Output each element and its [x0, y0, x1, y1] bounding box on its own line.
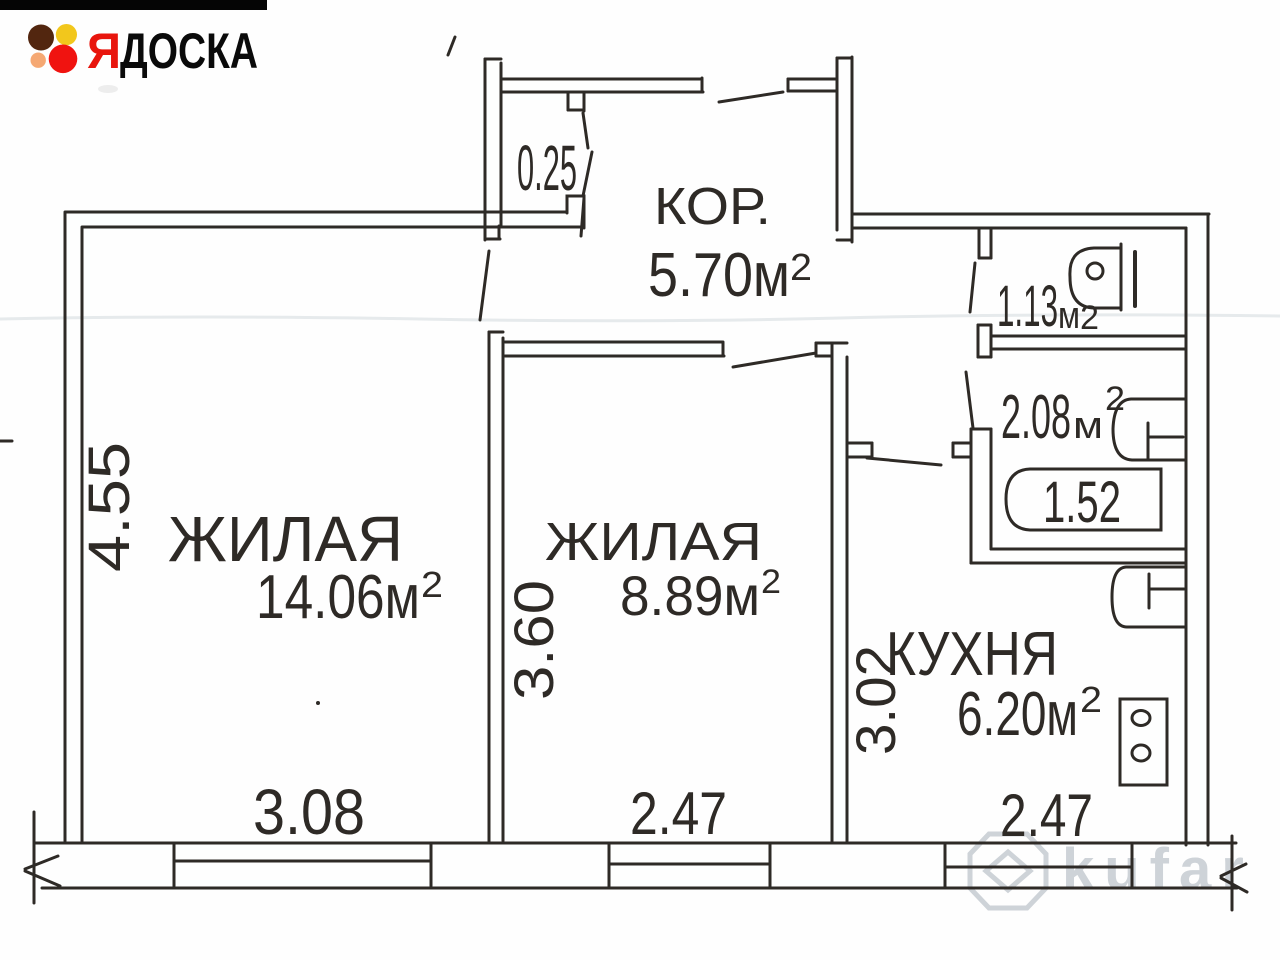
svg-text:2: 2 — [761, 563, 781, 601]
svg-text:2: 2 — [790, 247, 812, 289]
svg-text:ЖИЛАЯ: ЖИЛАЯ — [545, 512, 762, 572]
svg-text:1.52: 1.52 — [1043, 470, 1121, 535]
svg-text:2.47: 2.47 — [1000, 782, 1093, 849]
svg-text:КУХНЯ: КУХНЯ — [886, 620, 1058, 689]
svg-text:6.20м: 6.20м — [957, 680, 1078, 749]
svg-text:Я: Я — [87, 23, 121, 79]
svg-text:2.08: 2.08 — [1001, 383, 1071, 452]
svg-text:2: 2 — [421, 564, 443, 605]
svg-text:3.02: 3.02 — [844, 645, 907, 755]
svg-text:5.70м: 5.70м — [648, 241, 790, 310]
svg-text:4.55: 4.55 — [77, 442, 142, 572]
svg-text:8.89м: 8.89м — [620, 564, 760, 627]
svg-text:2: 2 — [1080, 679, 1102, 720]
svg-text:3.60: 3.60 — [502, 580, 565, 700]
svg-text:2: 2 — [1080, 299, 1099, 337]
svg-text:2: 2 — [1105, 380, 1125, 418]
svg-text:м: м — [1058, 295, 1080, 337]
svg-text:КОР.: КОР. — [654, 178, 771, 236]
svg-text:м: м — [1073, 405, 1103, 447]
svg-text:2.47: 2.47 — [630, 780, 727, 847]
svg-text:1.13: 1.13 — [997, 274, 1058, 339]
svg-text:0.25: 0.25 — [517, 132, 577, 204]
svg-text:14.06м: 14.06м — [256, 563, 420, 632]
svg-text:3.08: 3.08 — [253, 776, 365, 848]
svg-text:ДОСКА: ДОСКА — [120, 23, 258, 79]
